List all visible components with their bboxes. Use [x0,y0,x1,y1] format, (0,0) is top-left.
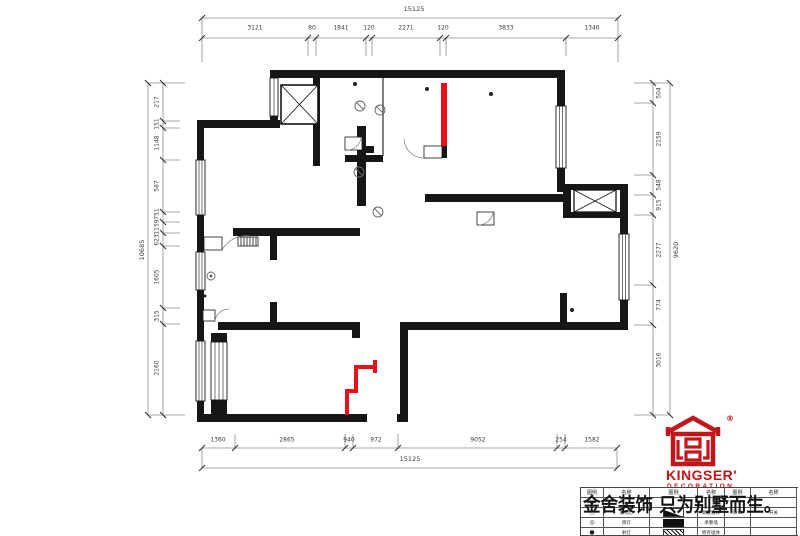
dim-total-top: 15125 [404,5,425,13]
dim-label: 972 [370,437,381,444]
dim-label: 151 [154,118,161,129]
dim-label: 504 [656,87,663,98]
dim-total-left: 10685 [138,240,146,261]
dim-label: 1346 [584,25,599,32]
dim-label: 120 [363,25,374,32]
dim-label: 3016 [656,352,663,367]
dim-label: 2271 [398,25,413,32]
slogan-watermark: 金舍装饰 只为别墅而生。 [583,490,781,517]
logo-brand-text: KINGSER' [666,467,737,483]
radiator-icon [238,237,258,246]
dim-label: 751 [154,208,161,219]
registered-mark: ® [726,414,734,423]
dim-label: 1148 [154,135,161,150]
dim-label: 80 [308,25,316,32]
legend-name [751,518,797,528]
legend-symbol: ◎ [581,518,604,528]
dim-label: 915 [656,199,663,210]
company-logo: ® KINGSER' DECORATION [662,414,798,488]
dim-label: 254 [555,437,566,444]
dim-label: 623 [154,234,161,245]
legend-name: 射灯 [604,528,650,536]
dim-label: 2277 [656,242,663,257]
dim-label: 548 [656,179,663,190]
legend-swatch [650,518,698,528]
dim-label: 1360 [210,437,225,444]
dim-label: 3121 [247,25,262,32]
legend-name: 筒灯 [604,518,650,528]
dim-label: 9052 [470,437,485,444]
legend-name: 原有墙体 [698,528,725,536]
legend-name [751,528,797,536]
dim-label: 120 [437,25,448,32]
dim-label: 940 [343,437,354,444]
dim-label: 587 [154,180,161,191]
dim-label: 774 [656,299,663,310]
floorplan-canvas: 15125 3121 80 1841 120 2271 120 3833 134… [0,0,800,536]
dim-label: 1605 [154,269,161,284]
elevator-icon [281,85,318,124]
dim-label: 2865 [279,437,294,444]
dim-total-bottom: 15125 [400,455,421,463]
dim-label: 3833 [498,25,513,32]
legend-symbol: ● [581,528,604,536]
legend-swatch [650,528,698,536]
dim-label: 1582 [584,437,599,444]
dim-label: 1159 [154,219,161,234]
legend-symbol [725,518,751,528]
logo-emblem-icon [662,414,732,468]
dim-label: 217 [154,96,161,107]
legend-symbol [725,528,751,536]
dim-label: 315 [154,310,161,321]
dim-total-right: 9620 [672,242,680,259]
shaft-box-icon [574,190,616,212]
dim-label: 2159 [656,131,663,146]
legend-name: 承重墙 [698,518,725,528]
dim-label: 1841 [333,25,348,32]
dim-label: 2160 [154,360,161,375]
